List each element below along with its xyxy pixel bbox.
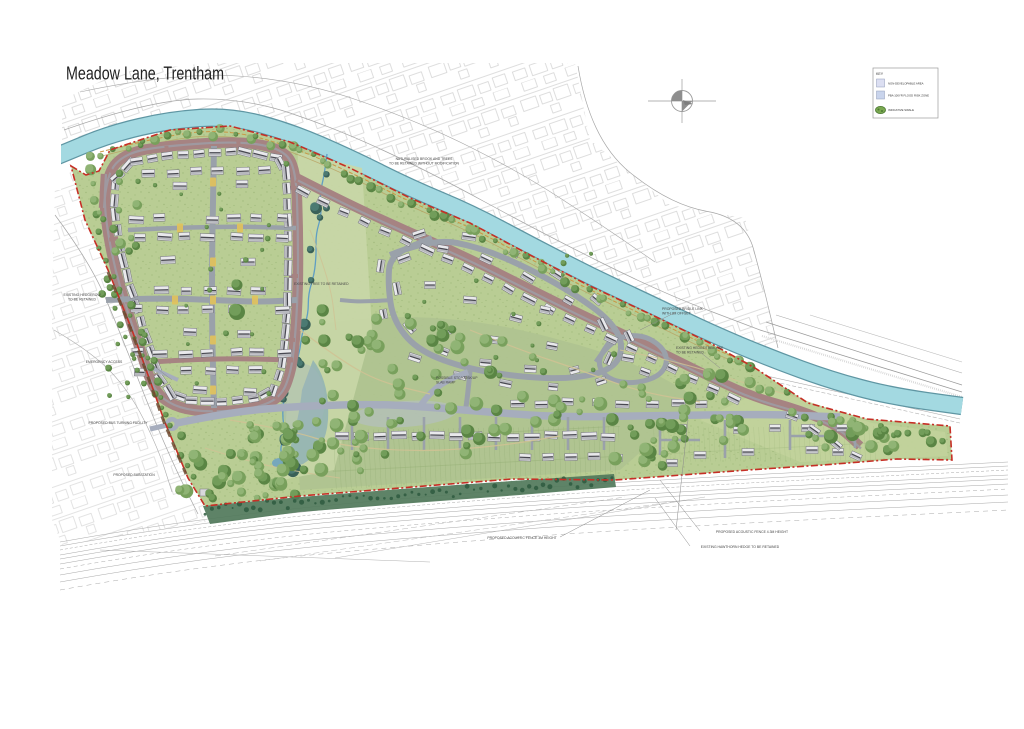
svg-text:INDICATIVE SWALE: INDICATIVE SWALE	[888, 108, 914, 112]
svg-text:PROPOSED BUS TURNING FACILITY: PROPOSED BUS TURNING FACILITY	[88, 421, 148, 425]
svg-text:WITH 3M OFFSET: WITH 3M OFFSET	[662, 311, 691, 315]
svg-text:PBA 100YR FLOOD RISK ZONE: PBA 100YR FLOOD RISK ZONE	[888, 94, 929, 98]
svg-text:EXISTING TREE TO BE RETAINED: EXISTING TREE TO BE RETAINED	[294, 282, 349, 286]
svg-text:PROPOSED ACOUSTIC FENCE 3M HEI: PROPOSED ACOUSTIC FENCE 3M HEIGHT	[487, 536, 556, 540]
svg-text:PROPOSED ACOUSTIC FENCE 4.3M H: PROPOSED ACOUSTIC FENCE 4.3M HEIGHT	[716, 530, 788, 534]
svg-text:TO BE RETAINED: TO BE RETAINED	[68, 297, 96, 301]
svg-text:EXISTING HAWTHORN HEDGE TO BE: EXISTING HAWTHORN HEDGE TO BE RETAINED	[701, 545, 780, 549]
svg-text:TO BE RETAINED WITHOUT MODIFIC: TO BE RETAINED WITHOUT MODIFICATION	[389, 161, 460, 165]
svg-text:EMERGENCY ACCESS: EMERGENCY ACCESS	[86, 360, 123, 364]
svg-text:PROPOSED SUBSTATION: PROPOSED SUBSTATION	[113, 473, 155, 477]
svg-text:Meadow Lane, Trentham: Meadow Lane, Trentham	[66, 64, 224, 84]
svg-text:NON-DEVELOPABLE AREA: NON-DEVELOPABLE AREA	[888, 82, 924, 86]
svg-text:KEY: KEY	[876, 72, 884, 76]
svg-text:SLAB RAMP: SLAB RAMP	[436, 380, 456, 384]
